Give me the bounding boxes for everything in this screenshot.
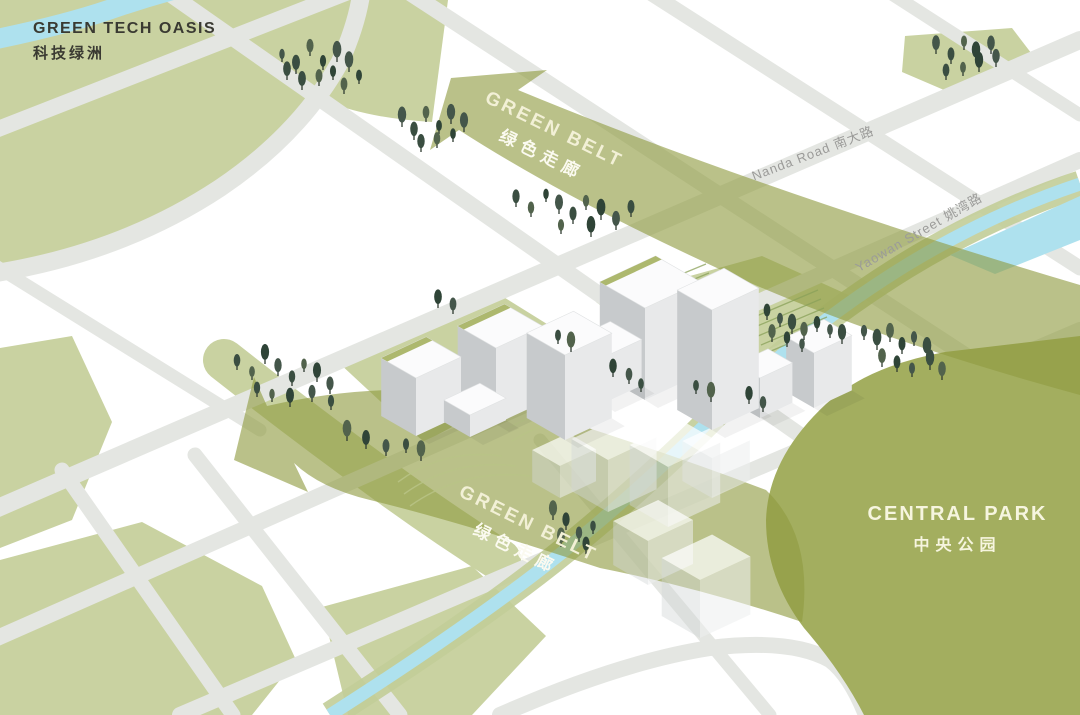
site-plan-canvas bbox=[0, 0, 1080, 715]
site-plan-diagram: GREEN TECH OASIS 科技绿洲 Nanda Road 南大路 Yao… bbox=[0, 0, 1080, 715]
building-block bbox=[677, 268, 772, 438]
